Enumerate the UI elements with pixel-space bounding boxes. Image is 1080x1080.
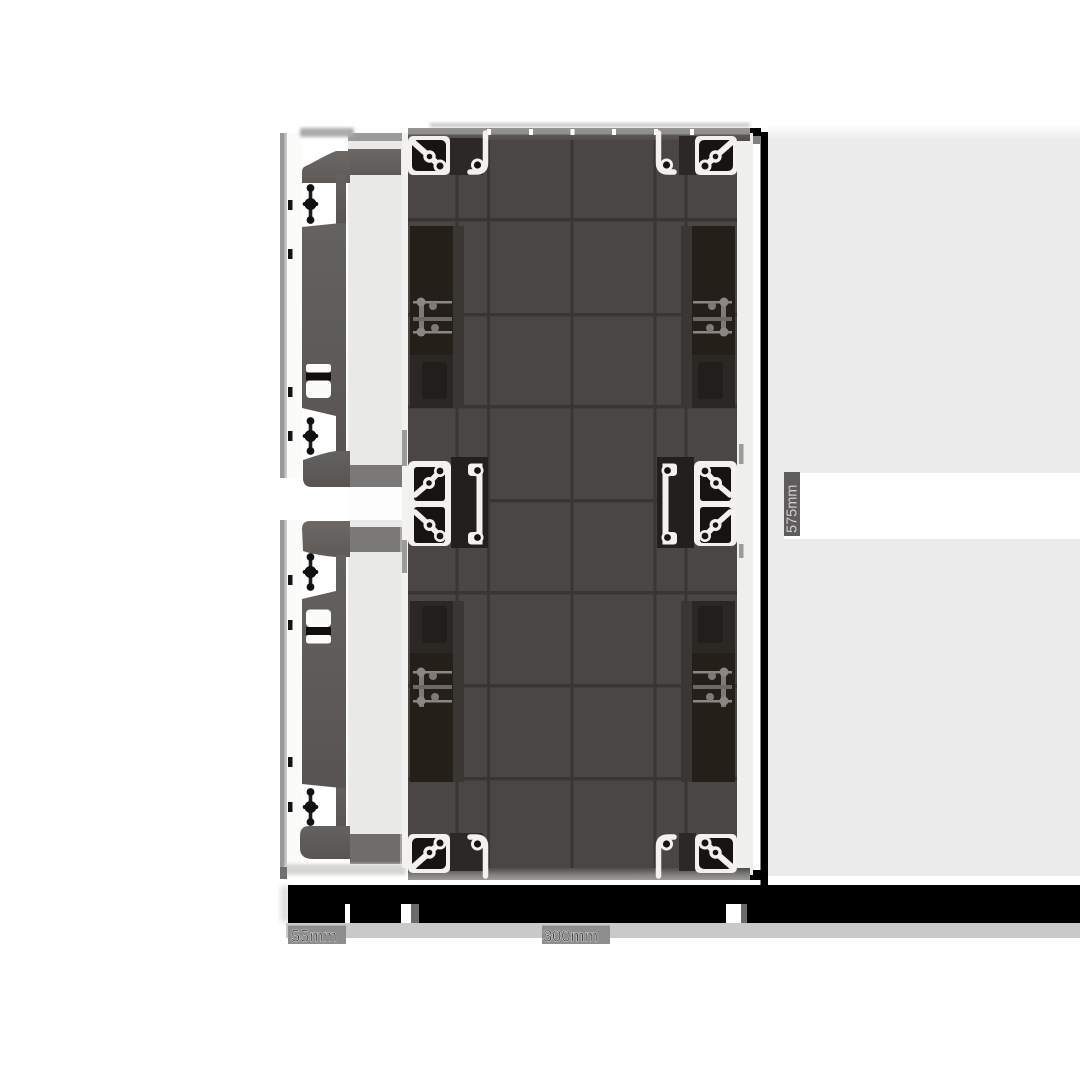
svg-text:575mm: 575mm	[785, 485, 801, 533]
svg-text:55mm: 55mm	[291, 928, 337, 946]
svg-text:300mm: 300mm	[543, 928, 598, 946]
